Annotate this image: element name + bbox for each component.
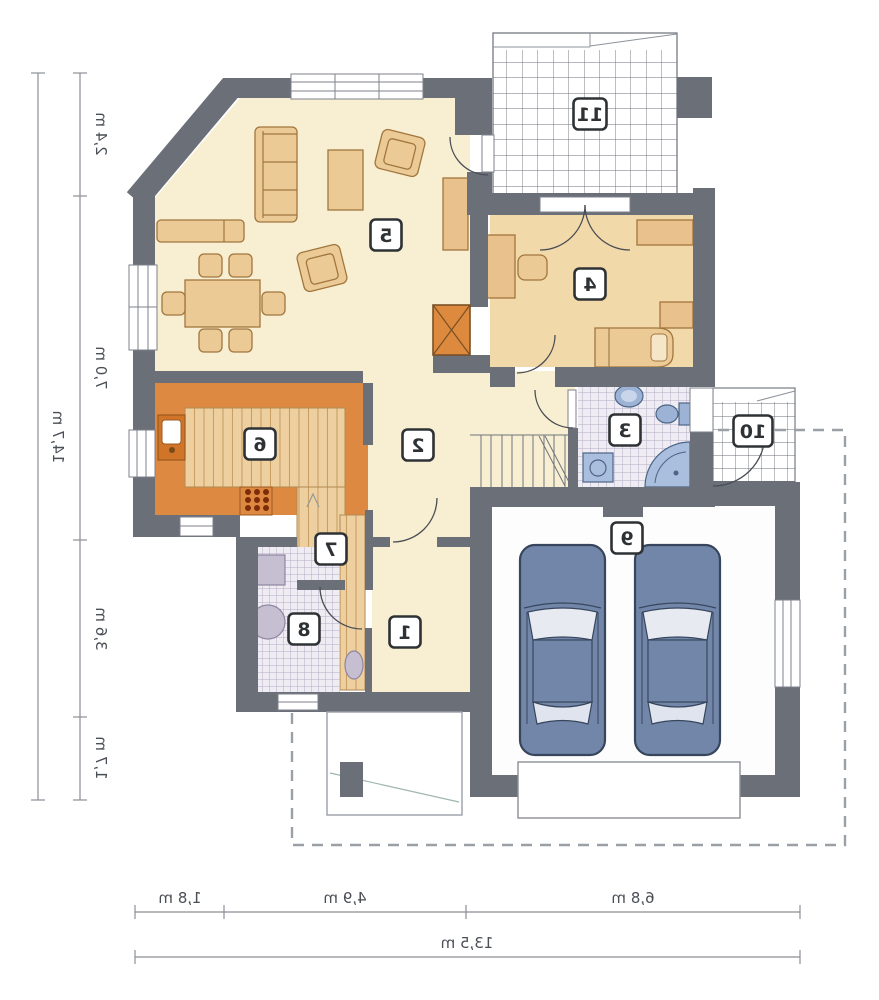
wall-porch-south: [713, 482, 800, 506]
room-number: 5: [379, 225, 392, 247]
wall-fireplace-stub: [433, 355, 490, 373]
wall-hall-room1-b: [365, 537, 390, 547]
room-number: 9: [620, 528, 633, 550]
dining-chair: [199, 329, 222, 352]
room-label-9: 9: [612, 523, 643, 554]
wall-wing-bottom-b: [490, 367, 515, 387]
wall-utility-top: [240, 537, 297, 547]
garage-door: [518, 762, 740, 818]
wall-wing-right: [693, 188, 715, 387]
toilet-tank: [679, 403, 690, 425]
wall-bath-left: [568, 428, 578, 487]
wardrobe: [637, 220, 693, 245]
room-number: 8: [297, 619, 310, 641]
garage-window: [775, 600, 800, 687]
dim-left-0: 2,4 m: [92, 112, 110, 155]
wall-south: [236, 692, 470, 712]
room-label-3: 3: [610, 415, 641, 446]
washing-machine: [583, 453, 613, 482]
room-number: 10: [740, 421, 766, 443]
dining-chair: [262, 292, 285, 315]
room-number: 1: [398, 622, 411, 644]
terrace-door-leaf: [482, 135, 494, 172]
bench-sofa: [157, 220, 244, 242]
room-label-7: 7: [316, 534, 347, 565]
wall-corner-block: [455, 78, 492, 135]
wall-side-lower: [236, 537, 258, 712]
wall-garage-top: [472, 487, 715, 507]
wall-side-upper: [133, 192, 155, 537]
stove: [240, 487, 272, 515]
dining-chair: [229, 329, 252, 352]
wall-living-wing: [470, 215, 488, 307]
tv-cabinet: [443, 178, 468, 250]
dining-window: [129, 265, 157, 350]
fireplace: [433, 305, 470, 355]
utility-window: [278, 694, 318, 710]
wall-pantry-utility: [297, 580, 345, 590]
mirror-group: 1 2 3 4 5 6 7: [31, 33, 845, 964]
wall-kitchen-hall-a: [363, 383, 373, 445]
dim-bottom-1: 4,9 m: [323, 889, 366, 907]
living-room-window: [291, 74, 423, 99]
dresser: [660, 302, 693, 328]
car-roof: [533, 640, 592, 702]
floor-plan-page: 1 2 3 4 5 6 7: [0, 0, 879, 1000]
wall-terrace-pillar: [677, 77, 712, 118]
car-1: [635, 545, 720, 755]
room-label-10: 10: [734, 416, 773, 447]
pillow: [651, 334, 667, 361]
wall-garage-left: [470, 487, 492, 797]
porch-door-band: [690, 388, 713, 432]
room-number: 6: [253, 434, 266, 456]
dim-left-total: 14,7 m: [49, 411, 67, 464]
dim-bottom-2: 6,8 m: [611, 889, 654, 907]
room-label-8: 8: [289, 614, 320, 645]
floor-plan-drawing: 1 2 3 4 5 6 7: [0, 0, 879, 1000]
room-label-1: 1: [390, 617, 421, 648]
shower-drain: [674, 471, 679, 476]
coffee-table: [328, 150, 363, 210]
dim-bottom-0: 1,8 m: [158, 889, 201, 907]
dimension-lines-bottom: 1,8 m 4,9 m 6,8 m 13,5 m: [135, 889, 800, 964]
room-label-6: 6: [245, 429, 276, 460]
dining-chair: [199, 254, 222, 277]
dim-left-2: 3,6 m: [92, 607, 110, 650]
dim-bottom-total: 13,5 m: [441, 934, 494, 952]
dining-chair: [162, 292, 185, 315]
staircase: [470, 435, 575, 487]
wall-room1-b: [365, 628, 372, 692]
dining-table: [185, 280, 260, 327]
wall-bath-right: [690, 432, 713, 490]
desk-chair: [518, 255, 547, 280]
bathroom-door-leaf: [568, 390, 576, 428]
wall-wing-bottom-a: [555, 367, 695, 387]
windshield: [528, 608, 597, 640]
room-label-4: 4: [575, 269, 606, 300]
entrance-side-block: [340, 762, 363, 797]
toilet: [656, 405, 678, 423]
car-roof: [648, 640, 707, 702]
room-number: 11: [577, 104, 603, 126]
dim-left-1: 7,0 m: [92, 346, 110, 389]
windshield: [643, 608, 712, 640]
car-2: [520, 545, 605, 755]
kitchen-side-window: [129, 430, 155, 477]
room-number: 2: [411, 435, 424, 457]
wall-kitchen-top: [153, 371, 363, 383]
wall-terrace-door-jamb: [467, 172, 492, 215]
room-label-2: 2: [403, 430, 434, 461]
sofa: [255, 127, 297, 222]
wall-garage-chimney: [603, 500, 643, 517]
water-heater: [345, 651, 363, 679]
room-number: 3: [618, 420, 631, 442]
dim-left-3: 1,7 m: [92, 736, 110, 779]
wall-room1-a: [365, 547, 372, 585]
dining-chair: [229, 254, 252, 277]
room-number: 7: [324, 539, 337, 561]
kitchen-south-window: [180, 517, 213, 536]
kitchen-sink: [162, 420, 181, 444]
room-number: 4: [583, 274, 596, 296]
room-label-11: 11: [574, 99, 607, 130]
wall-hall-room1-a: [437, 537, 472, 547]
room-label-5: 5: [371, 220, 402, 251]
dimension-lines-side: 2,4 m 7,0 m 3,6 m 1,7 m 14,7 m: [31, 73, 110, 800]
faucet: [169, 447, 175, 453]
